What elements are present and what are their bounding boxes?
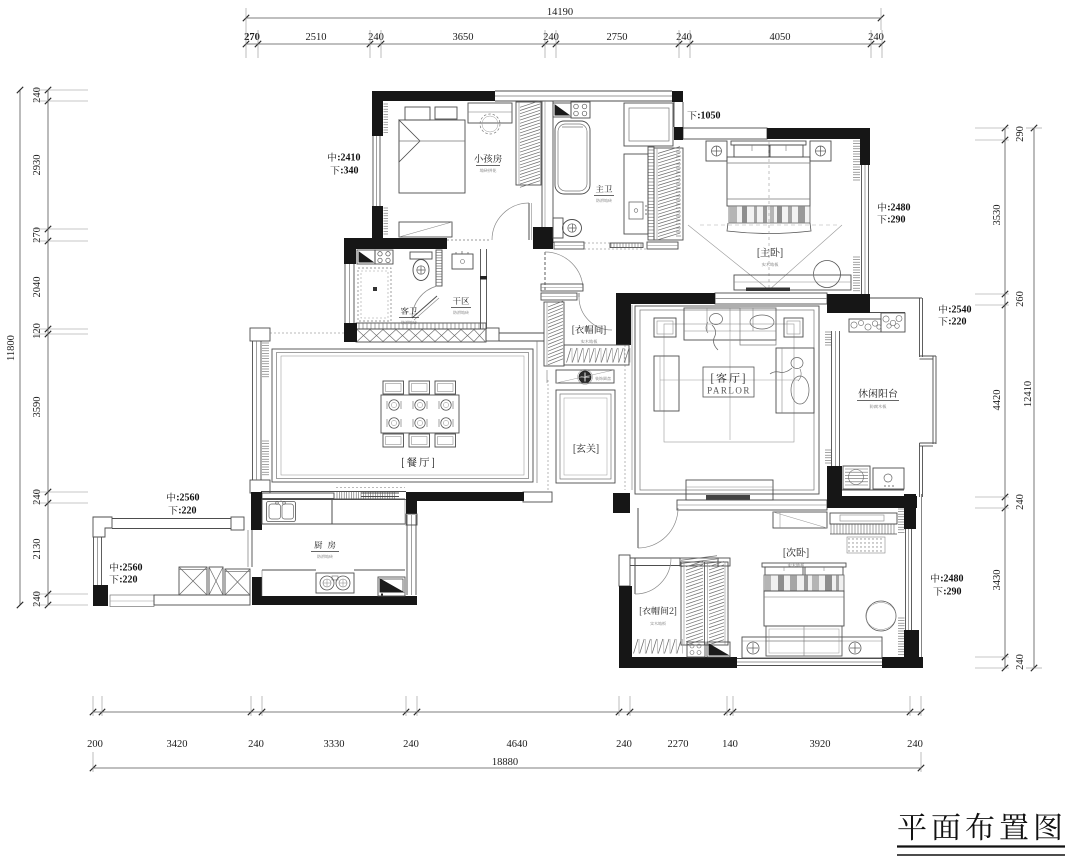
- svg-text::2540: :2540: [948, 305, 971, 316]
- svg-text:240: 240: [32, 489, 43, 505]
- svg-text:12410: 12410: [1023, 381, 1034, 407]
- svg-text:240: 240: [1015, 494, 1026, 510]
- svg-text:240: 240: [32, 87, 43, 103]
- svg-text:140: 140: [722, 739, 738, 750]
- svg-text::290: :290: [943, 587, 961, 598]
- svg-text:2130: 2130: [32, 539, 43, 560]
- svg-text:3920: 3920: [810, 739, 831, 750]
- svg-text:240: 240: [543, 32, 559, 43]
- svg-text:240: 240: [676, 32, 692, 43]
- svg-text::2560: :2560: [176, 493, 199, 504]
- svg-text:3420: 3420: [167, 739, 188, 750]
- svg-text::340: :340: [340, 166, 358, 177]
- svg-text:120: 120: [32, 323, 43, 339]
- svg-text:2270: 2270: [668, 739, 689, 750]
- svg-text:2510: 2510: [306, 32, 327, 43]
- svg-text:4050: 4050: [770, 32, 791, 43]
- svg-text:200: 200: [87, 739, 103, 750]
- svg-text:3650: 3650: [453, 32, 474, 43]
- svg-text:PARLOR: PARLOR: [707, 386, 751, 396]
- svg-text::220: :220: [178, 506, 196, 517]
- svg-text:270: 270: [32, 227, 43, 243]
- svg-text:240: 240: [248, 739, 264, 750]
- svg-text::220: :220: [948, 317, 966, 328]
- svg-text:4640: 4640: [507, 739, 528, 750]
- svg-text::2410: :2410: [337, 153, 360, 164]
- svg-text:2930: 2930: [32, 155, 43, 176]
- svg-text:260: 260: [1015, 291, 1026, 307]
- svg-text:240: 240: [403, 739, 419, 750]
- svg-text:18880: 18880: [492, 757, 518, 768]
- svg-text:3430: 3430: [992, 570, 1003, 591]
- svg-text:2750: 2750: [607, 32, 628, 43]
- svg-text:240: 240: [1015, 654, 1026, 670]
- svg-text:240: 240: [868, 32, 884, 43]
- svg-text:240: 240: [32, 591, 43, 607]
- svg-text:290: 290: [1015, 126, 1026, 142]
- svg-text::1050: :1050: [697, 111, 720, 122]
- svg-text:270: 270: [244, 32, 260, 43]
- svg-text:14190: 14190: [547, 7, 573, 18]
- svg-text::220: :220: [119, 575, 137, 586]
- svg-text:4420: 4420: [992, 390, 1003, 411]
- svg-text::2480: :2480: [887, 203, 910, 214]
- svg-text::2480: :2480: [940, 574, 963, 585]
- svg-text:3330: 3330: [324, 739, 345, 750]
- svg-text:2040: 2040: [32, 277, 43, 298]
- svg-text:240: 240: [616, 739, 632, 750]
- svg-text:11800: 11800: [6, 335, 17, 361]
- svg-text:240: 240: [368, 32, 384, 43]
- svg-text:3530: 3530: [992, 205, 1003, 226]
- svg-text:240: 240: [907, 739, 923, 750]
- svg-text:3590: 3590: [32, 397, 43, 418]
- svg-text::290: :290: [887, 215, 905, 226]
- svg-text::2560: :2560: [119, 563, 142, 574]
